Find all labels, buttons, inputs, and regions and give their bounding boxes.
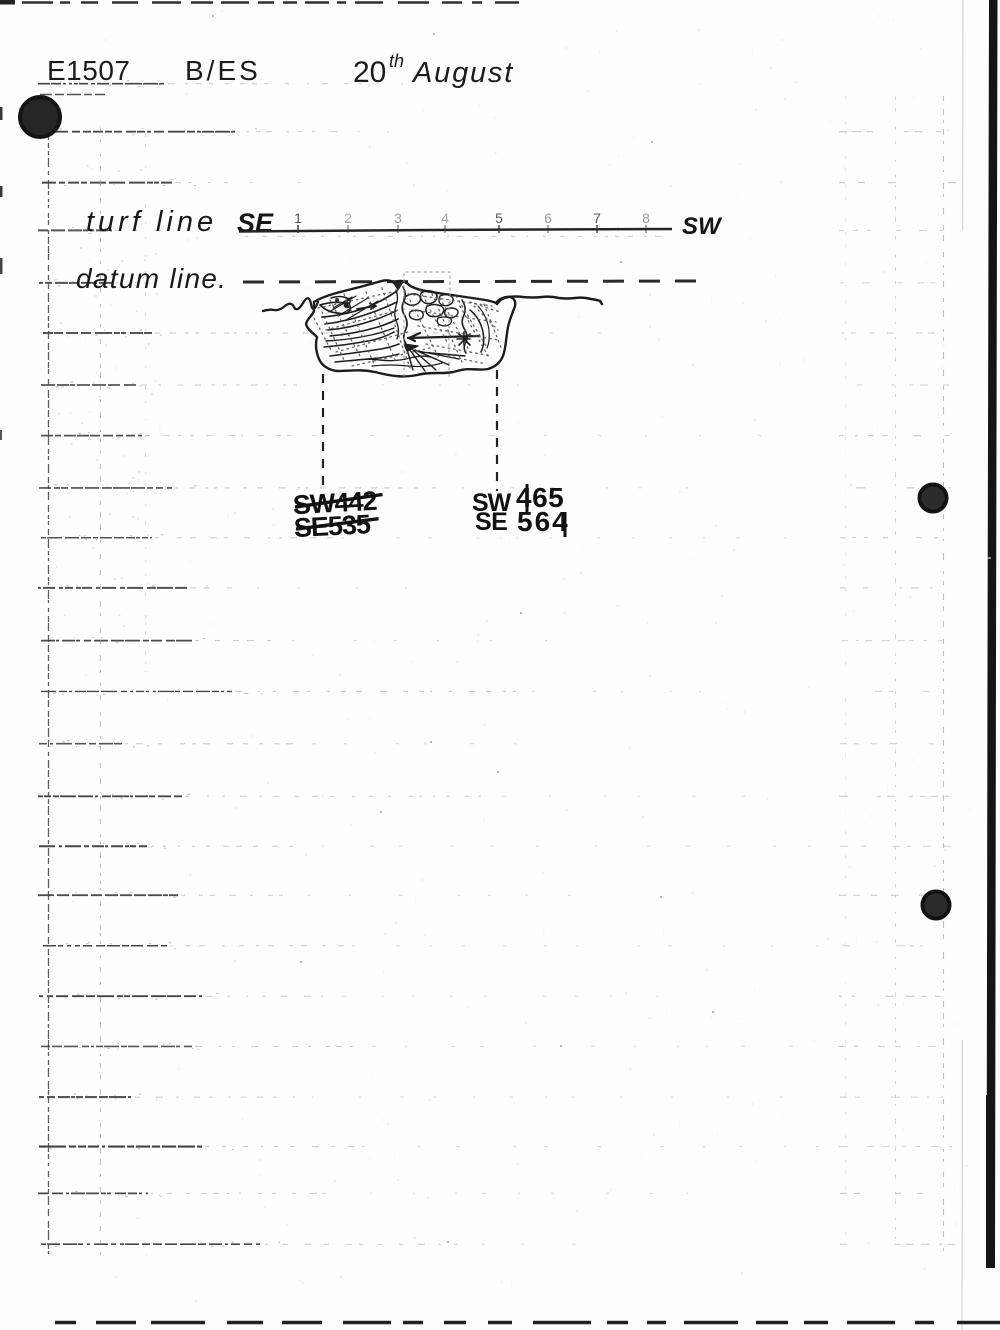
svg-text:564: 564	[517, 506, 570, 537]
svg-text:1: 1	[294, 210, 302, 226]
svg-text:SE: SE	[475, 508, 507, 536]
svg-text:2: 2	[344, 210, 352, 226]
svg-text:B/ES: B/ES	[185, 55, 261, 86]
svg-text:4: 4	[441, 210, 449, 226]
svg-text:SE: SE	[237, 208, 274, 238]
svg-text:7: 7	[593, 210, 601, 226]
svg-text:20: 20	[353, 56, 386, 89]
svg-text:5: 5	[495, 210, 503, 226]
svg-text:E1507: E1507	[47, 55, 130, 86]
svg-text:datum line.: datum line.	[76, 263, 227, 294]
svg-text:8: 8	[642, 210, 650, 226]
svg-text:3: 3	[394, 210, 402, 226]
svg-text:August: August	[411, 57, 514, 89]
svg-text:SW: SW	[682, 213, 723, 240]
svg-text:6: 6	[544, 210, 552, 226]
svg-text:turf line: turf line	[86, 206, 217, 238]
svg-text:th: th	[389, 51, 404, 71]
